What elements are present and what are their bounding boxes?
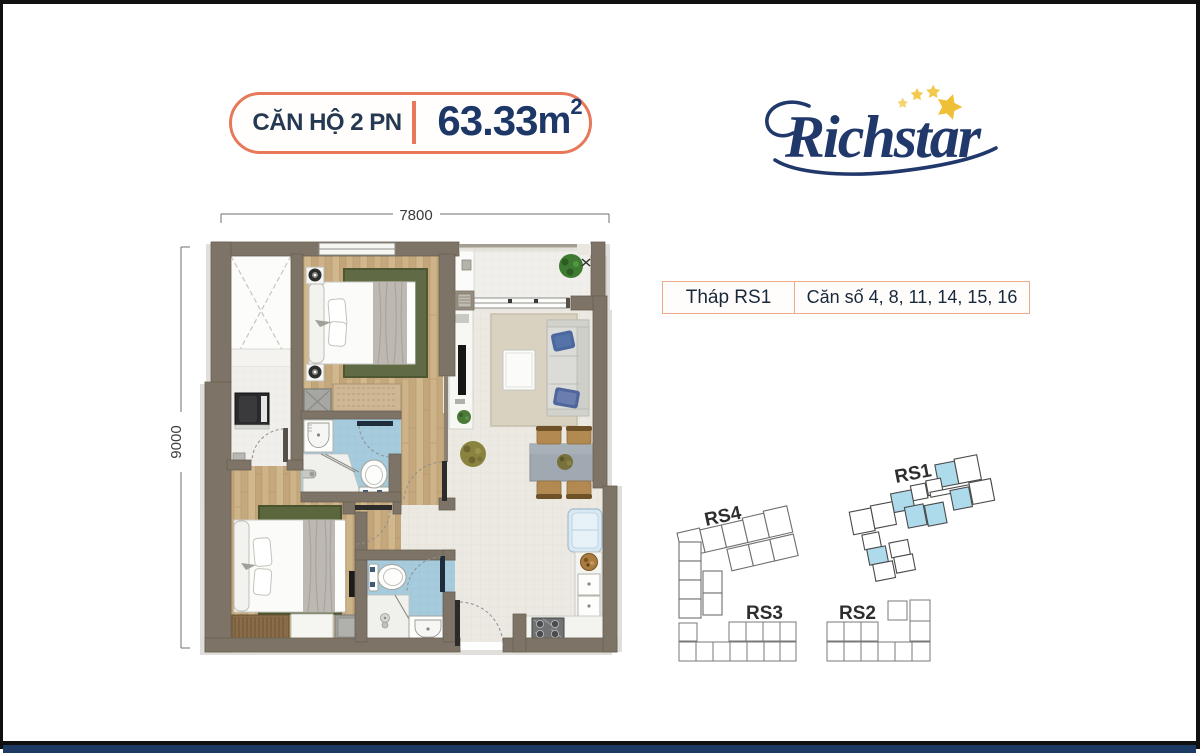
svg-text:RS2: RS2	[839, 603, 876, 624]
svg-text:9000: 9000	[168, 425, 185, 458]
svg-text:RS3: RS3	[746, 603, 783, 624]
svg-text:7800: 7800	[399, 207, 432, 224]
